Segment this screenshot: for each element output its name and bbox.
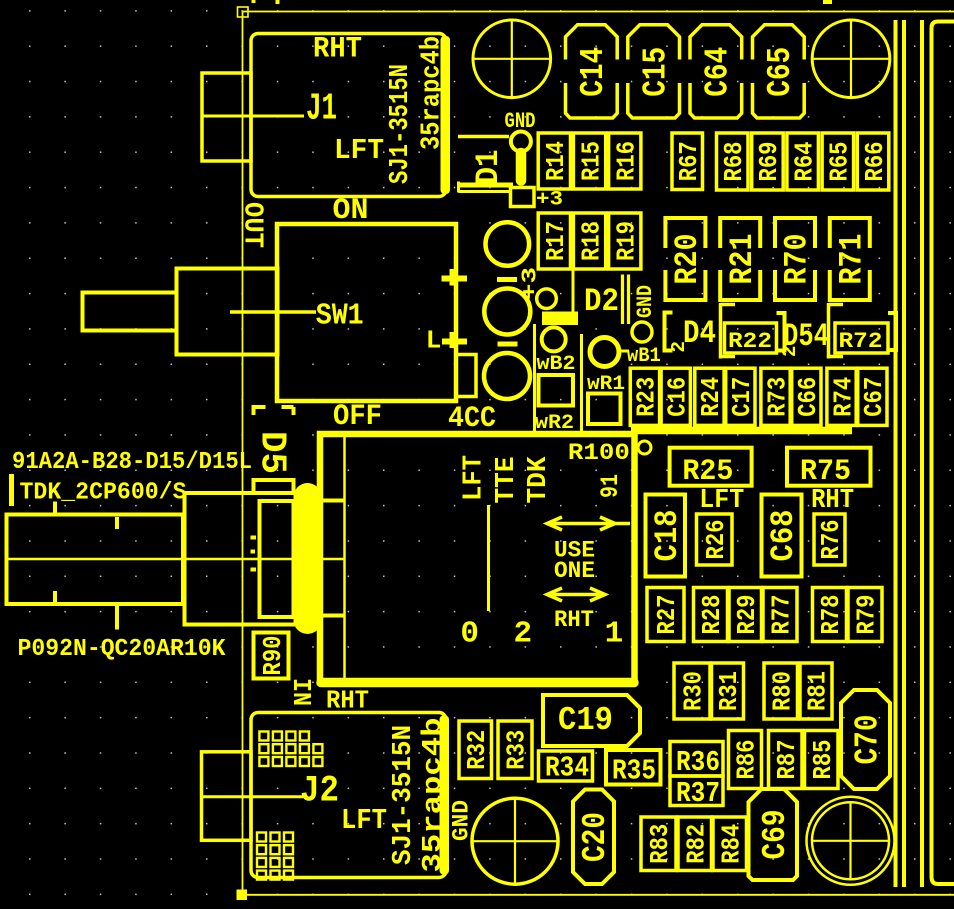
svg-text:R25: R25 [682, 455, 733, 489]
svg-text:R71: R71 [834, 234, 871, 285]
svg-text:R21: R21 [724, 234, 761, 285]
svg-text:R28: R28 [697, 595, 727, 635]
svg-text:L: L [426, 326, 442, 356]
svg-text:R66: R66 [860, 142, 890, 182]
svg-text:R81: R81 [803, 671, 833, 711]
svg-text:LFT: LFT [460, 455, 490, 501]
svg-text:2: 2 [514, 616, 533, 651]
svg-text:R19: R19 [611, 221, 641, 261]
svg-text:R82: R82 [681, 824, 711, 864]
svg-text:R16: R16 [611, 141, 641, 181]
svg-text:0: 0 [460, 616, 479, 651]
svg-text:C16: C16 [662, 377, 692, 417]
svg-text:R32: R32 [462, 730, 492, 770]
svg-text:R36: R36 [676, 746, 720, 779]
svg-text:R30: R30 [679, 671, 709, 711]
svg-text:D1: D1 [470, 150, 507, 185]
svg-text:C66: C66 [793, 377, 823, 417]
svg-text:OUT: OUT [237, 202, 267, 248]
svg-text:SW1: SW1 [316, 299, 364, 334]
svg-text:C68: C68 [765, 510, 802, 562]
svg-text:R29: R29 [732, 595, 762, 635]
svg-text:35rapc4b: 35rapc4b [418, 36, 448, 150]
svg-text:wB1: wB1 [627, 345, 661, 368]
svg-text:OFF: OFF [333, 400, 382, 434]
svg-text:R100: R100 [568, 440, 630, 466]
svg-text:R77: R77 [767, 595, 797, 635]
svg-text:R78: R78 [816, 595, 846, 635]
svg-text:R35: R35 [612, 755, 656, 788]
svg-text:C69: C69 [757, 810, 794, 860]
svg-text:35rapc4b: 35rapc4b [419, 718, 449, 873]
svg-text:R90: R90 [258, 636, 288, 676]
svg-text:R14: R14 [541, 141, 571, 181]
svg-text:R70: R70 [779, 234, 816, 285]
svg-text:R18: R18 [576, 221, 606, 261]
svg-text:LFT: LFT [699, 486, 744, 516]
svg-text:R37: R37 [676, 777, 720, 810]
svg-text:R84: R84 [716, 824, 746, 864]
svg-text:GND: GND [633, 285, 658, 318]
svg-text:R20: R20 [669, 234, 706, 285]
svg-text:R24: R24 [696, 377, 726, 417]
svg-text:TDK_2CP600/S: TDK_2CP600/S [20, 480, 187, 507]
svg-text:C14: C14 [575, 47, 612, 97]
svg-text:J2: J2 [300, 770, 339, 812]
svg-text:R23: R23 [632, 377, 662, 417]
svg-text:SJ1-3515N: SJ1-3515N [389, 725, 419, 865]
svg-text:GND: GND [449, 800, 475, 841]
svg-text:GND: GND [505, 109, 536, 134]
svg-text:RHT: RHT [313, 33, 362, 67]
svg-text:R73: R73 [762, 377, 792, 417]
svg-text:C64: C64 [700, 47, 737, 97]
svg-text:2: 2 [668, 341, 690, 352]
svg-text:R80: R80 [767, 671, 797, 711]
svg-text:C70: C70 [850, 715, 887, 765]
svg-text:R27: R27 [652, 595, 682, 635]
svg-text:R65: R65 [825, 142, 855, 182]
svg-text:D2: D2 [584, 283, 619, 320]
svg-text:C19: C19 [558, 702, 613, 739]
svg-text:R85: R85 [808, 740, 838, 780]
svg-text:R68: R68 [719, 142, 749, 182]
svg-text:ON: ON [333, 194, 369, 228]
svg-text:RHT: RHT [811, 486, 854, 516]
svg-text:C20: C20 [577, 812, 614, 862]
svg-text:R26: R26 [701, 520, 731, 560]
svg-text:2: 2 [779, 346, 801, 357]
svg-text:ONE: ONE [554, 558, 595, 584]
svg-text:R22: R22 [728, 329, 772, 354]
svg-text:wB2: wB2 [537, 353, 576, 376]
svg-text:P092N-QC20AR10K: P092N-QC20AR10K [18, 636, 227, 663]
svg-text:C67: C67 [859, 377, 889, 417]
svg-text:R75: R75 [800, 455, 851, 489]
svg-text:J1: J1 [306, 87, 337, 130]
svg-text:SJ1-3515N: SJ1-3515N [386, 64, 416, 184]
svg-text:+3: +3 [536, 189, 563, 212]
svg-text:R74: R74 [828, 377, 858, 417]
svg-text:91A2A-B28-D15/D15L: 91A2A-B28-D15/D15L [12, 449, 252, 476]
svg-text:LFT: LFT [334, 134, 384, 167]
svg-text:R34: R34 [545, 752, 589, 785]
svg-text:RHT: RHT [554, 607, 594, 633]
svg-text:D5: D5 [252, 431, 293, 474]
svg-text:C65: C65 [762, 47, 799, 97]
svg-text:R76: R76 [816, 520, 846, 560]
svg-text:R67: R67 [674, 141, 704, 181]
svg-text:R87: R87 [772, 740, 802, 780]
svg-text:R72: R72 [839, 329, 883, 354]
svg-text:1: 1 [605, 616, 624, 651]
svg-text:C17: C17 [727, 377, 757, 417]
svg-text:RHT: RHT [326, 686, 369, 716]
svg-text:R86: R86 [732, 740, 762, 780]
svg-text:TTE: TTE [492, 457, 522, 504]
svg-text:R64: R64 [789, 142, 819, 182]
svg-text:R31: R31 [714, 671, 744, 711]
svg-text:LFT: LFT [341, 804, 387, 837]
svg-text:R17: R17 [541, 221, 571, 261]
svg-text:R69: R69 [754, 142, 784, 182]
svg-text:91: 91 [596, 474, 625, 498]
svg-text:TDK: TDK [524, 456, 554, 504]
svg-text:IN: IN [286, 678, 316, 706]
svg-text:R15: R15 [576, 141, 606, 181]
svg-text:R79: R79 [852, 595, 882, 635]
svg-text:R83: R83 [645, 824, 675, 864]
svg-text:C15: C15 [638, 47, 675, 97]
svg-text:C18: C18 [649, 510, 686, 562]
svg-text:R33: R33 [502, 730, 532, 770]
